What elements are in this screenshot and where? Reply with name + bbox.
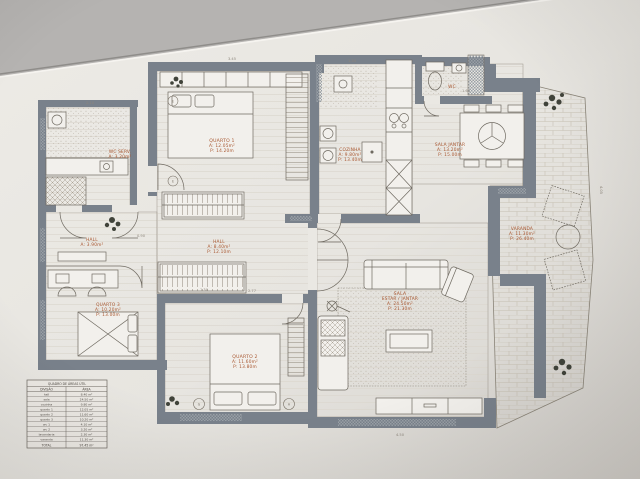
photo-vignette (0, 0, 640, 479)
floorplan-drawing: E E G A WC SERV. A: 3.20m² QUARTO 1 A: 1… (0, 0, 640, 479)
photo-of-floorplan: E E G A WC SERV. A: 3.20m² QUARTO 1 A: 1… (0, 0, 640, 479)
